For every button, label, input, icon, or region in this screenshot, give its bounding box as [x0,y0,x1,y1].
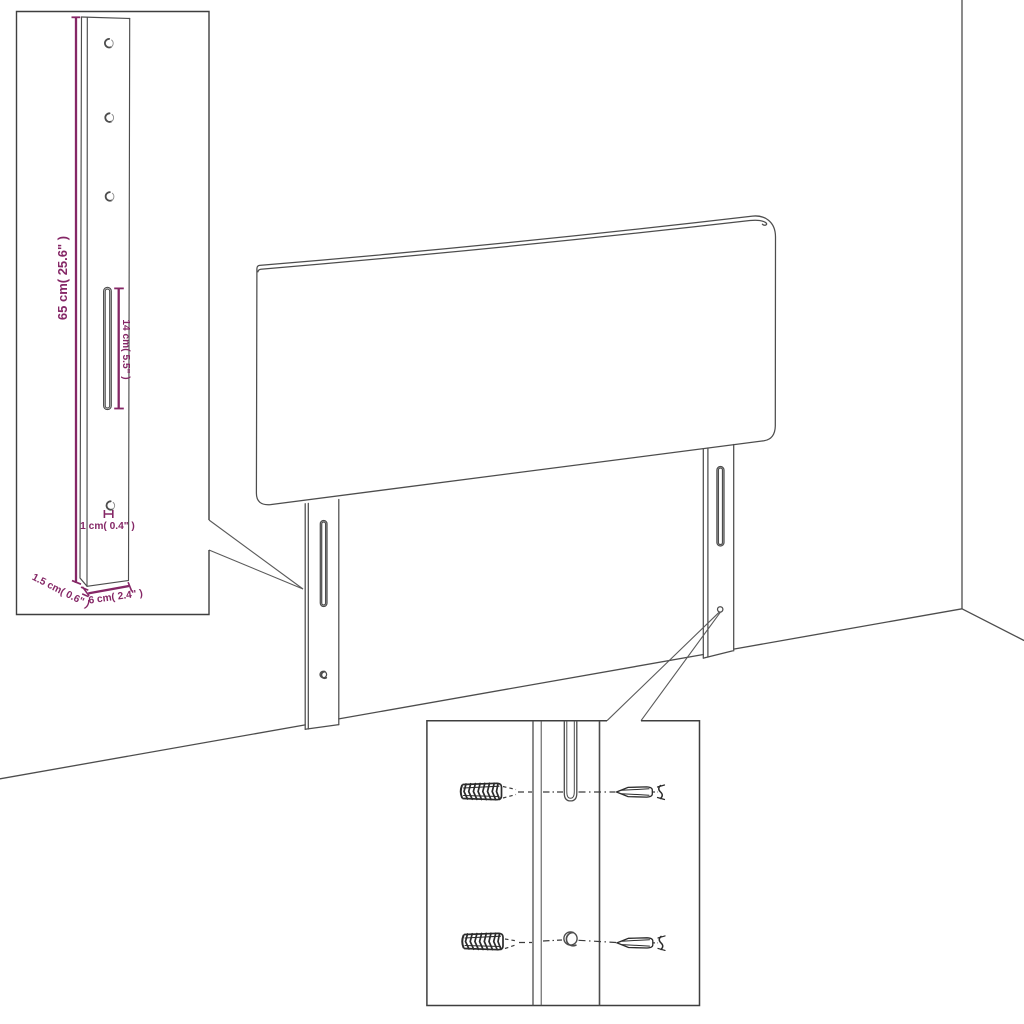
svg-text:65 cm( 25.6" ): 65 cm( 25.6" ) [55,236,70,320]
svg-text:1 cm( 0.4" ): 1 cm( 0.4" ) [80,521,135,532]
svg-text:14 cm( 5.5" ): 14 cm( 5.5" ) [120,319,131,379]
